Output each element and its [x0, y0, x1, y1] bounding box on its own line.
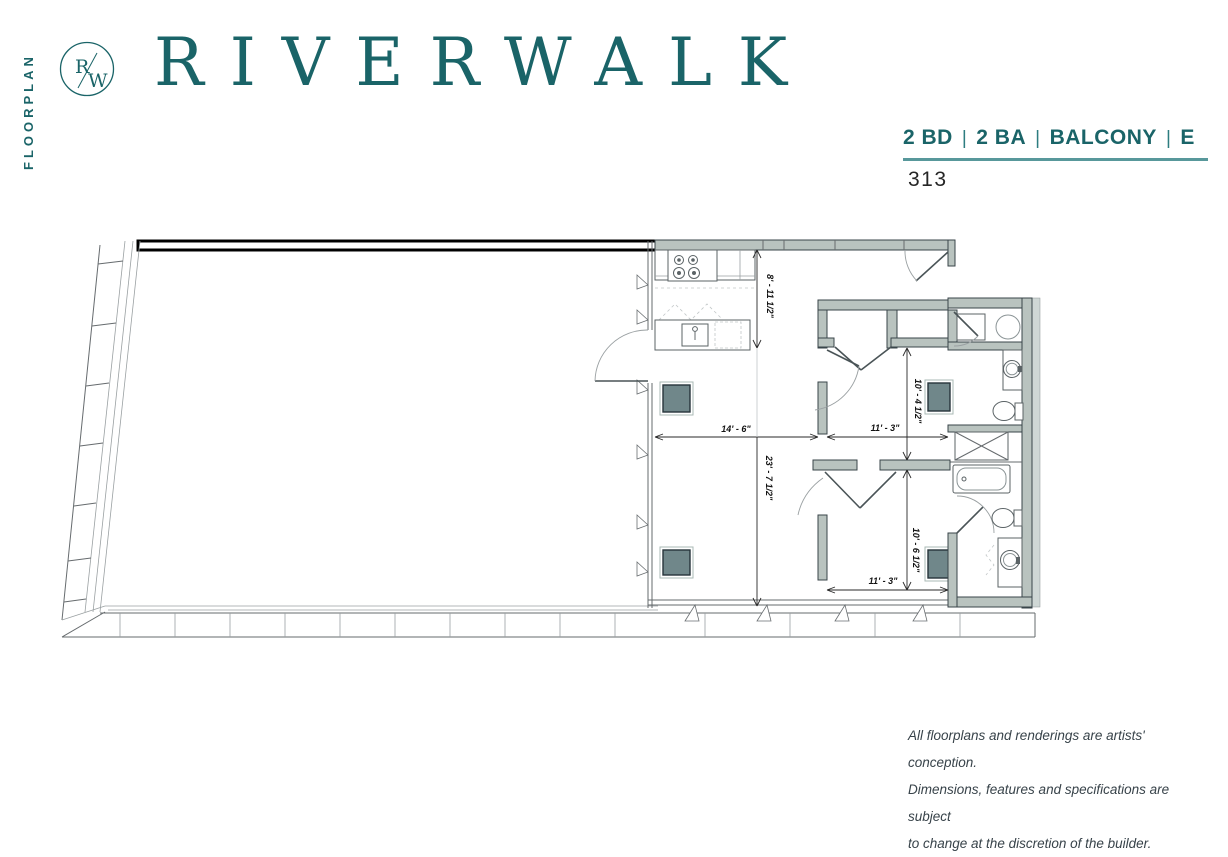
vanity-sink: [1003, 350, 1022, 390]
column: [663, 385, 690, 412]
spec-bd: 2 BD: [903, 126, 953, 149]
upper-cabinets-dashed: [655, 288, 755, 320]
dim-bed2-depth: 10' - 6 1/2": [911, 528, 921, 573]
kitchen-island: [655, 320, 750, 350]
column: [928, 383, 950, 411]
kitchen: [655, 250, 755, 350]
disclaimer-line: to change at the discretion of the build…: [908, 830, 1208, 857]
column: [663, 550, 690, 575]
dim-bed1-depth: 10' - 4 1/2": [913, 379, 923, 424]
bedroom-2: [798, 460, 950, 580]
spec-separator: |: [1157, 128, 1180, 149]
unit-number: 313: [908, 168, 948, 192]
bedroom1-door: [815, 350, 859, 434]
laundry-and-tub: [948, 425, 1022, 493]
toilet: [992, 509, 1022, 528]
toilet: [993, 402, 1023, 421]
bath2-door: [957, 496, 994, 533]
disclaimer: All floorplans and renderings are artist…: [908, 722, 1208, 857]
basin: [996, 315, 1020, 339]
bathtub: [953, 465, 1010, 493]
bathroom-2: [948, 496, 1022, 607]
page-title: RIVERWALK: [154, 24, 813, 101]
balcony-door: [595, 330, 648, 381]
shower: [957, 314, 985, 340]
dim-bed1-width: 11' - 3": [871, 423, 900, 433]
balcony-rail: [138, 241, 658, 250]
floorplan-page: { "brand": { "floorplan_vertical_label":…: [0, 0, 1228, 794]
spec-ba: 2 BA: [976, 126, 1026, 149]
column: [928, 550, 950, 578]
dim-living-width: 14' - 6": [721, 424, 751, 434]
disclaimer-line: All floorplans and renderings are artist…: [908, 722, 1208, 776]
logo-letter-w: W: [88, 70, 108, 92]
bathroom-1: [948, 310, 1023, 421]
dim-kitchen-depth: 8' - 11 1/2": [765, 274, 775, 318]
disclaimer-line: Dimensions, features and specifications …: [908, 776, 1208, 830]
structural-columns: [660, 380, 953, 581]
stove: [668, 250, 717, 281]
vanity-sink: [986, 538, 1022, 587]
spec-separator: |: [953, 128, 976, 149]
bedroom2-doors: [798, 472, 896, 515]
floorplan-vertical-label: FLOORPLAN: [21, 40, 36, 170]
spec-balcony: BALCONY: [1050, 126, 1157, 149]
entry-door: [905, 250, 948, 281]
washer-dryer: [955, 432, 1008, 460]
rw-logo: R W: [58, 40, 118, 100]
floorplan-drawing: 8' - 11 1/2" 14' - 6" 23' - 7 1/2" 11' -…: [55, 230, 1045, 653]
spec-separator: |: [1026, 128, 1049, 149]
dim-bed2-width: 11' - 3": [869, 576, 898, 586]
unit-spec-row: 2 BD|2 BA|BALCONY|E: [903, 126, 1208, 161]
dim-living-depth: 23' - 7 1/2": [764, 455, 774, 501]
spec-plan-letter: E: [1180, 126, 1195, 149]
